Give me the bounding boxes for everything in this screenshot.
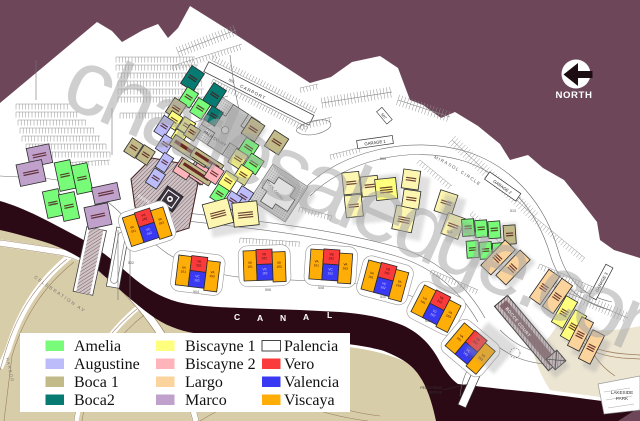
svg-text:163: 163	[209, 274, 215, 279]
svg-text:162: 162	[327, 271, 333, 275]
svg-text:514: 514	[468, 355, 474, 359]
svg-text:262: 262	[196, 263, 202, 268]
svg-text:161: 161	[180, 269, 186, 274]
svg-text:510: 510	[380, 295, 386, 299]
svg-text:161: 161	[314, 263, 320, 267]
svg-text:163: 163	[276, 265, 282, 269]
svg-text:Marco: Marco	[185, 392, 227, 409]
svg-text:Biscayne 2: Biscayne 2	[185, 356, 256, 373]
svg-text:C: C	[234, 312, 240, 322]
svg-text:504: 504	[193, 290, 199, 294]
svg-text:512: 512	[425, 319, 431, 323]
svg-text:Amelia: Amelia	[74, 338, 121, 355]
svg-text:PEDESTRIAN: PEDESTRIAN	[420, 386, 442, 390]
svg-text:Vero: Vero	[284, 356, 314, 373]
svg-text:Boca2: Boca2	[74, 392, 115, 409]
svg-text:A: A	[303, 312, 309, 322]
svg-text:NORTH: NORTH	[555, 90, 592, 101]
svg-text:BRIDGE: BRIDGE	[429, 391, 443, 395]
svg-text:Biscayne 1: Biscayne 1	[185, 338, 256, 355]
svg-text:262: 262	[329, 256, 335, 260]
svg-text:508: 508	[318, 286, 324, 290]
svg-text:162: 162	[194, 278, 200, 283]
svg-text:Palencia: Palencia	[284, 338, 338, 355]
svg-text:LAKESIDE: LAKESIDE	[611, 390, 633, 395]
svg-text:N: N	[280, 313, 286, 323]
svg-text:PARK: PARK	[616, 396, 629, 401]
svg-text:Boca 1: Boca 1	[74, 374, 119, 391]
svg-text:502: 502	[128, 261, 134, 265]
svg-text:262: 262	[262, 256, 268, 260]
svg-text:Viscaya: Viscaya	[284, 392, 335, 409]
svg-text:Valencia: Valencia	[284, 374, 339, 391]
svg-text:Augustine: Augustine	[74, 356, 140, 373]
svg-text:A: A	[257, 313, 263, 323]
svg-text:L: L	[327, 310, 332, 320]
svg-text:506: 506	[265, 288, 271, 292]
svg-text:163: 163	[342, 266, 348, 270]
svg-text:162: 162	[262, 271, 268, 275]
svg-text:Largo: Largo	[185, 374, 223, 391]
svg-text:161: 161	[247, 265, 253, 269]
svg-text:500: 500	[50, 202, 56, 206]
